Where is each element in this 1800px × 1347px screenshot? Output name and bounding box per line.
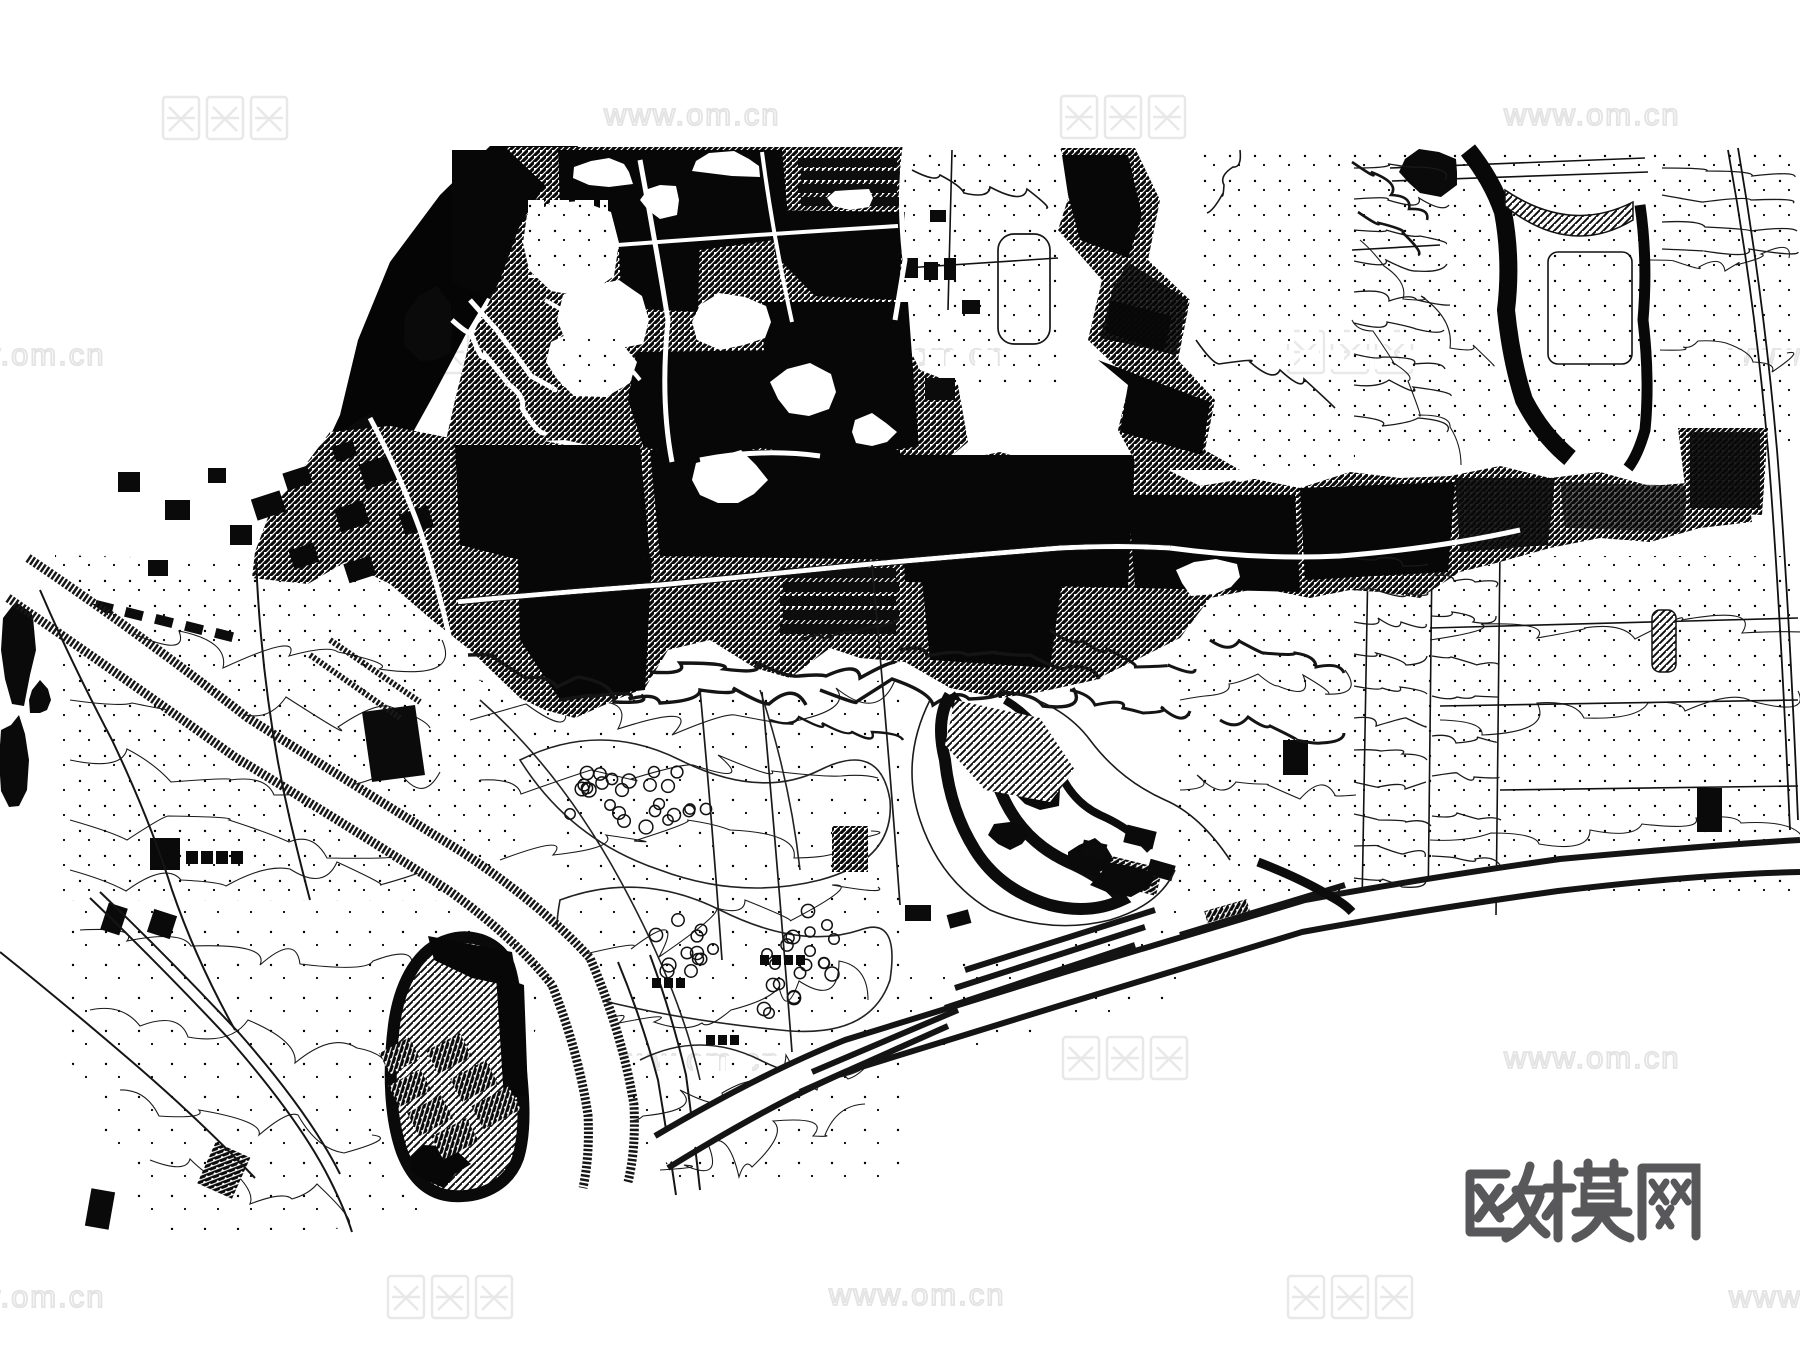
svg-text:www.om.cn: www.om.cn [603,97,780,132]
svg-text:www.om.cn: www.om.cn [0,1279,105,1314]
svg-text:www.om.cn: www.om.cn [1503,1040,1680,1075]
svg-text:www.om.cn: www.om.cn [1503,97,1680,132]
svg-text:www.om.cn: www.om.cn [828,1277,1005,1312]
svg-text:www.om.cn: www.om.cn [1728,1279,1800,1314]
svg-text:www.om.cn: www.om.cn [0,337,105,372]
